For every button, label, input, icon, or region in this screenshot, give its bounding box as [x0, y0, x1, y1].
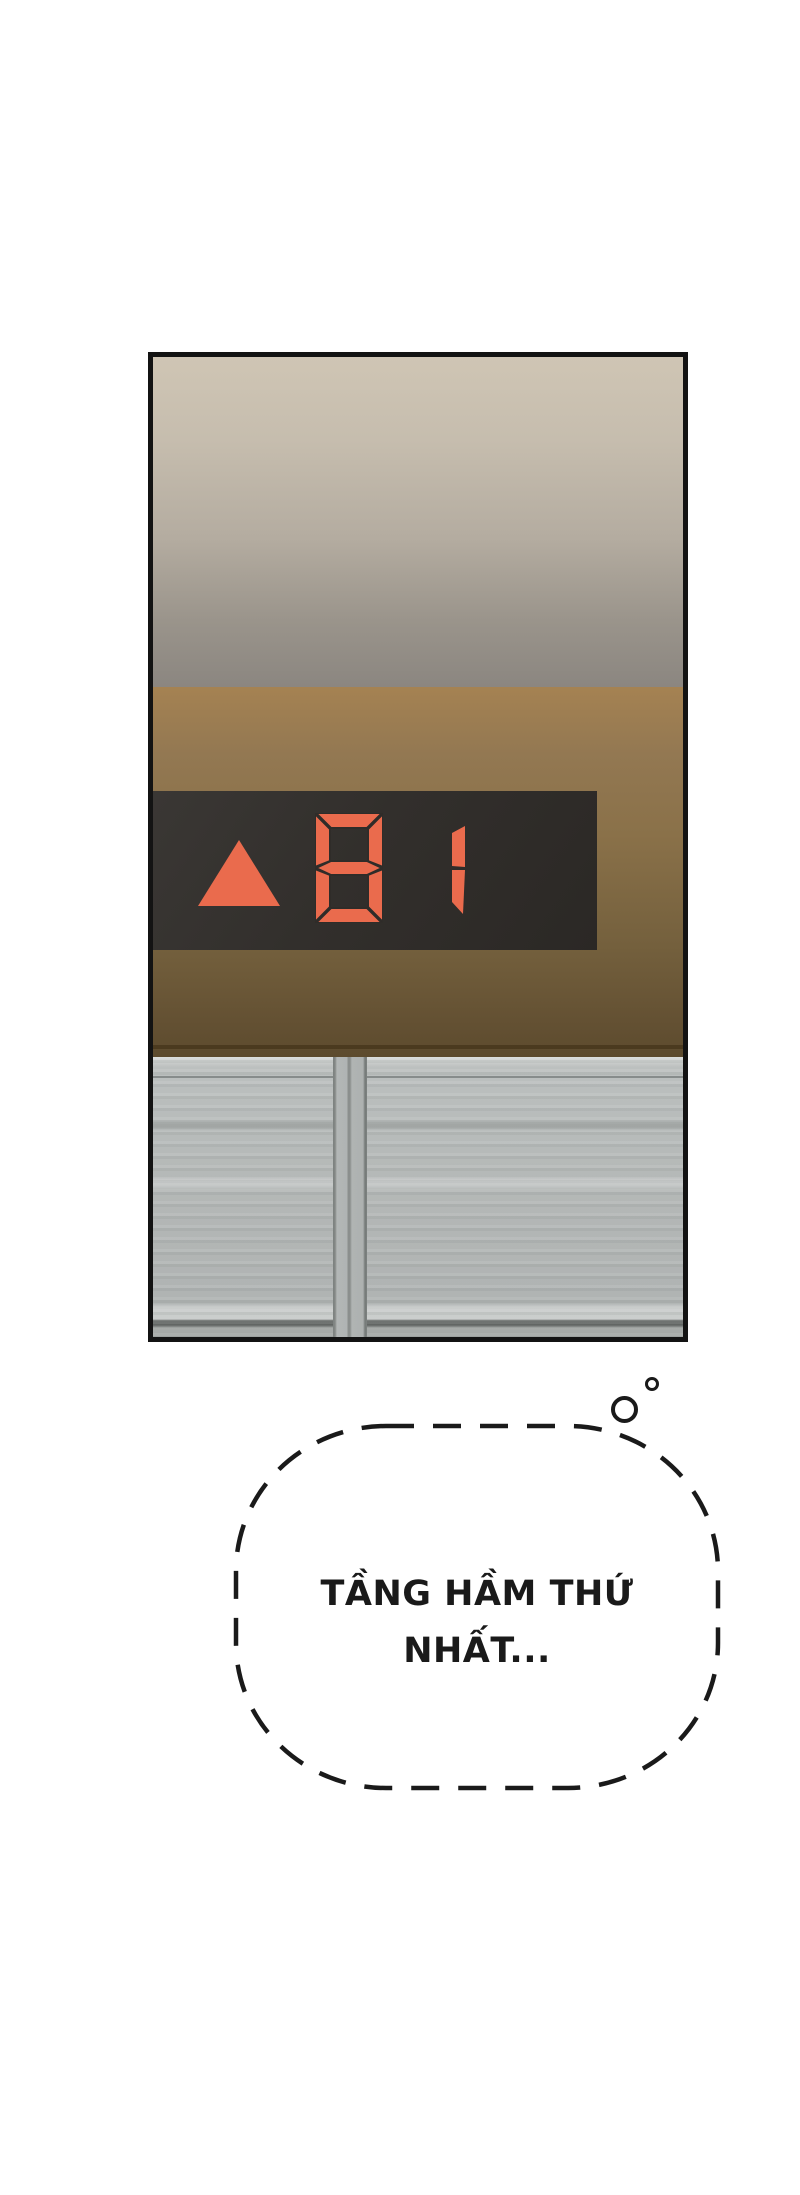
bubble-text-line-1: TẦNG HẦM THỨ [232, 1566, 722, 1623]
comic-page: TẦNG HẦM THỨ NHẤT... [0, 0, 800, 2195]
thought-trail-bubble-large [611, 1396, 638, 1423]
thought-trail-bubble-small [645, 1377, 659, 1391]
seven-segment-digit-1 [449, 826, 465, 914]
up-arrow-icon [198, 840, 280, 906]
door-inset-groove [153, 1076, 683, 1078]
bubble-text-line-2: NHẤT... [232, 1623, 722, 1680]
brushed-metal-texture [153, 1057, 683, 1337]
seven-segment-digit-b [315, 813, 383, 923]
elevator-scene-panel [148, 352, 688, 1342]
door-center-seam [333, 1057, 367, 1337]
upper-wall-gradient [153, 357, 683, 687]
thought-bubble-text: TẦNG HẦM THỨ NHẤT... [232, 1566, 722, 1680]
floor-indicator-display [153, 791, 597, 950]
wall-trim-line [153, 1045, 683, 1049]
elevator-doors [153, 1057, 683, 1337]
panel-interior [153, 357, 683, 1337]
